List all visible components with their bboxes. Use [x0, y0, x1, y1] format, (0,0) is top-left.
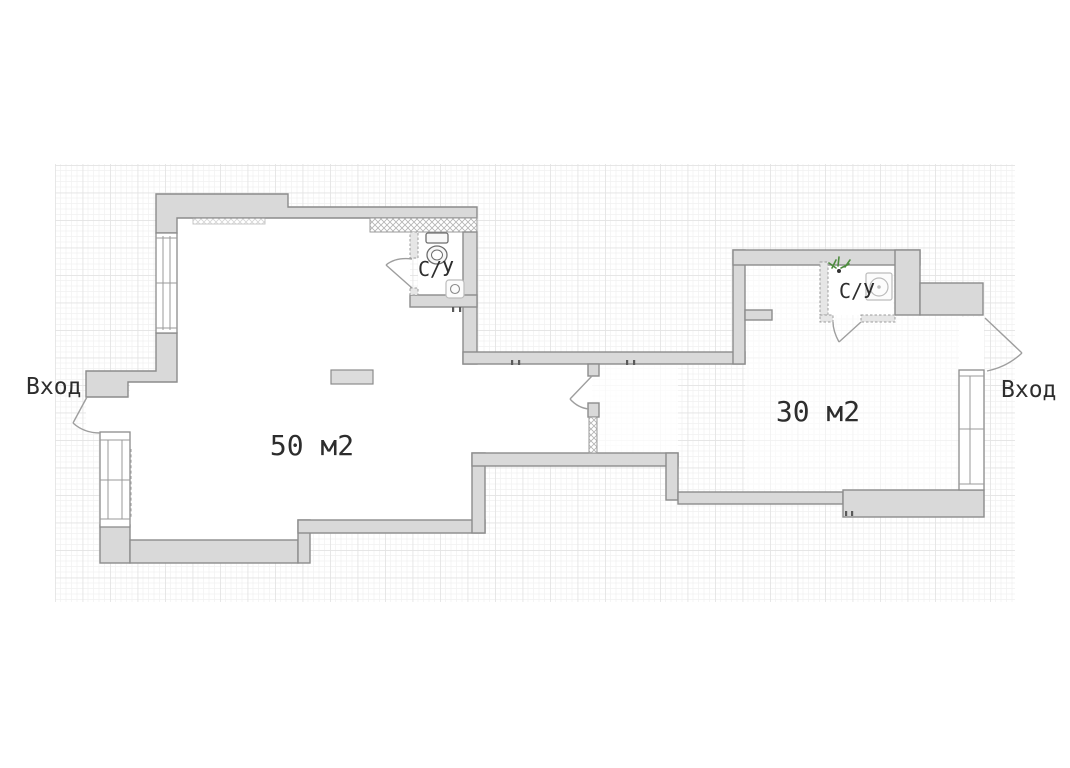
- kitchen-counter: [331, 370, 373, 384]
- connecting-wall: [463, 352, 745, 364]
- corridor-step-wall: [666, 453, 678, 500]
- window-left-upper: [156, 233, 177, 333]
- bathroom-label-right: С/У: [839, 279, 875, 303]
- left-unit-bottom-wall: [130, 540, 298, 563]
- sink-icon: [446, 280, 464, 298]
- hatched-wall-section: [370, 218, 477, 232]
- left-unit-bottom-wall-thin: [298, 520, 485, 533]
- right-bathroom-right-wall: [895, 250, 920, 315]
- left-door-opening: [86, 397, 130, 432]
- right-bathroom-bottom-left: [820, 315, 833, 322]
- middle-door-post-bottom: [588, 403, 599, 417]
- bottom-left-corner-block: [100, 525, 130, 563]
- corridor-floor: [592, 364, 678, 453]
- right-unit-bottom-wall-thick: [843, 490, 984, 517]
- corridor-bottom-wall: [472, 453, 678, 466]
- right-bathroom-partition: [820, 262, 828, 315]
- top-right-corner-wall: [920, 283, 983, 315]
- middle-door-post-top: [588, 364, 599, 376]
- window-left-lower: [100, 432, 130, 527]
- wall-stub: [745, 310, 772, 320]
- left-bathroom-partition-upper: [410, 232, 418, 258]
- hatched-strip: [193, 218, 265, 224]
- right-unit-left-wall: [733, 250, 745, 364]
- bathroom-label-left: С/У: [418, 257, 454, 281]
- room-label-left: 50 м2: [270, 429, 354, 462]
- right-door-opening: [959, 317, 984, 370]
- right-unit-bottom-wall: [678, 492, 843, 504]
- room-label-right: 30 м2: [776, 395, 860, 428]
- left-bathroom-partition-lower: [410, 288, 418, 295]
- entrance-label-left: Вход: [26, 374, 81, 400]
- window-right: [959, 370, 984, 490]
- floor-plan-page: 50 м2 30 м2 С/У С/У Вход Вход: [0, 0, 1070, 768]
- entrance-label-right: Вход: [1001, 377, 1056, 403]
- right-bathroom-bottom-right: [861, 315, 895, 322]
- middle-light-partition: [589, 417, 597, 453]
- left-bathroom-bottom-wall: [410, 295, 477, 307]
- floor-plan-canvas: 50 м2 30 м2 С/У С/У Вход Вход: [0, 0, 1070, 768]
